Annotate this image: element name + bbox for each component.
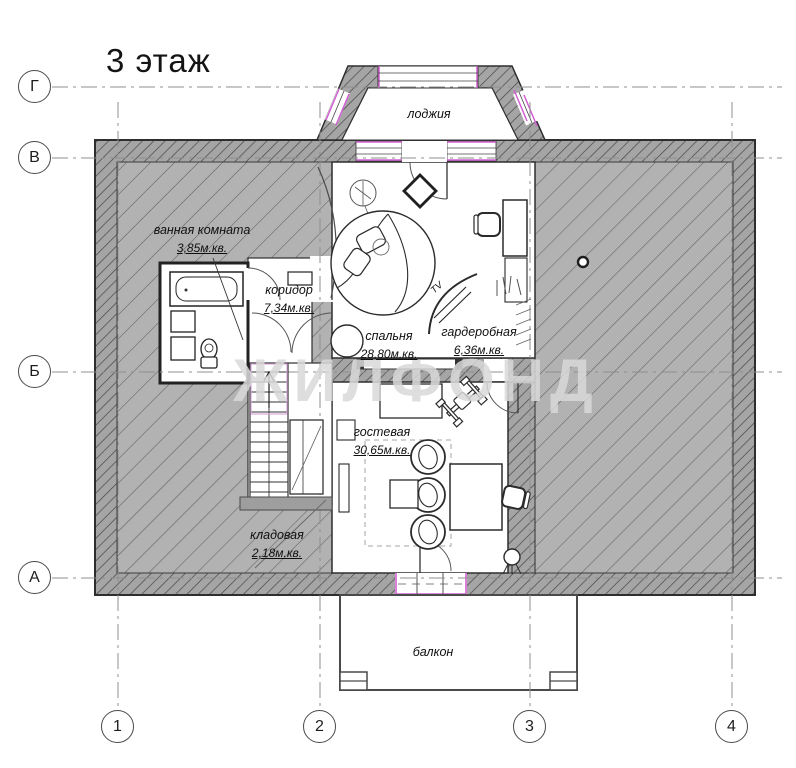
axis-row-b: Б	[18, 355, 51, 388]
room-label-balcony: балкон	[413, 643, 454, 661]
page-title: 3 этаж	[106, 42, 211, 80]
side-table	[390, 480, 418, 508]
loggia	[317, 66, 545, 140]
bath-shelf	[171, 311, 195, 332]
room-label-bedroom: спальня 28,80м.кв.	[361, 327, 418, 363]
room-label-wardrobe: гардеробная 6,36м.кв.	[441, 323, 516, 359]
axis-col-2: 2	[303, 710, 336, 743]
desk	[503, 200, 527, 256]
axis-row-a: А	[18, 561, 51, 594]
media-stand	[339, 464, 349, 512]
balcony	[340, 595, 577, 690]
cabinet	[505, 258, 527, 302]
axis-col-3: 3	[513, 710, 546, 743]
axis-row-v: В	[18, 141, 51, 174]
shelf	[337, 420, 355, 440]
room-label-guestroom: гостевая 30,65м.кв.	[354, 423, 411, 459]
axis-col-1: 1	[101, 710, 134, 743]
room-label-corridor: коридор 7,34м.кв.	[264, 281, 314, 317]
table	[450, 464, 502, 530]
axis-col-4: 4	[715, 710, 748, 743]
loggia-door-gap	[402, 141, 447, 162]
floor-lamp	[504, 549, 520, 565]
room-label-loggia: лоджия	[407, 105, 450, 123]
axis-row-g: Г	[18, 70, 51, 103]
bath-shelf	[171, 337, 195, 360]
loggia-window	[378, 66, 478, 88]
desk-chair	[477, 213, 500, 236]
floor-plan-page: ЖИЛФОНД 3 этаж Г В Б А 1 2 3 4 лоджия ва…	[0, 0, 796, 768]
room-label-bathroom: ванная комната 3,85м.кв.	[154, 221, 251, 257]
attic-marker-circle	[578, 257, 588, 267]
room-label-storage: кладовая 2,18м.кв.	[250, 526, 304, 562]
